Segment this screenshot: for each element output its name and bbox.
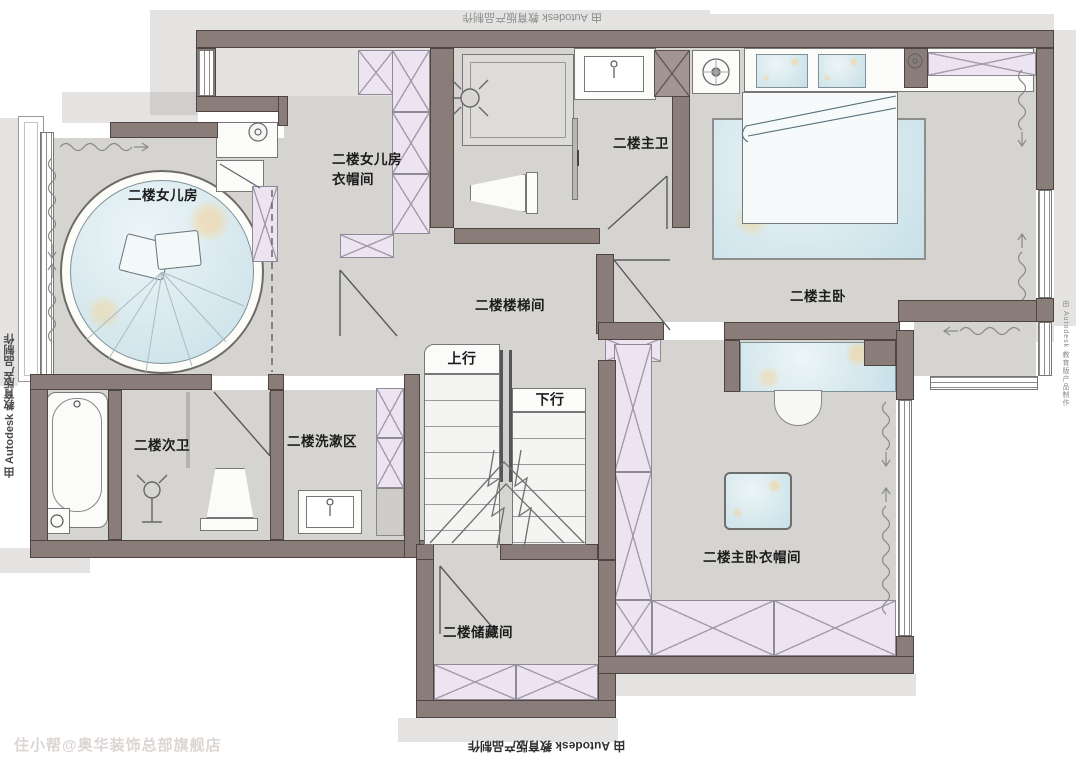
curtain-symbol <box>944 327 1020 335</box>
curtain-symbol <box>882 402 890 466</box>
stair-break-bolt <box>515 450 531 548</box>
watermark-autodesk-right: 由 Autodesk 教育版产品制作 <box>1060 300 1070 480</box>
room-label-storage: 二楼储藏间 <box>443 623 513 643</box>
door-swing <box>340 270 397 336</box>
room-label-second-bath: 二楼次卫 <box>134 436 190 456</box>
curtain-symbol <box>1018 70 1026 146</box>
room-label-washing-area: 二楼洗漱区 <box>287 432 357 452</box>
faucet-icons <box>51 61 617 527</box>
curtain-symbol <box>882 488 890 614</box>
curtain-symbols <box>48 70 1026 614</box>
door-swing <box>608 176 667 229</box>
door-swing <box>214 392 270 456</box>
curtain-symbol <box>48 158 56 258</box>
watermark-autodesk-left: 由 Autodesk 教育版产品制作 <box>2 278 18 478</box>
room-label-daughter: 二楼女儿房 <box>128 186 198 206</box>
bed-fold-lines <box>742 96 896 142</box>
curtain-symbol <box>48 264 56 342</box>
shower-fixture-icon <box>137 475 167 522</box>
room-label-daughter-closet: 二楼女儿房 衣帽间 <box>332 150 402 191</box>
desk-stool-icon <box>220 123 267 188</box>
stair-label-down: 下行 <box>536 390 565 411</box>
corner-fixture-icon <box>908 54 922 68</box>
watermark-autodesk-bottom: 由 Autodesk 教育版产品制作 <box>468 738 625 755</box>
symbol-overlay <box>0 0 1080 764</box>
door-swing <box>614 260 670 330</box>
room-label-stairwell: 二楼楼梯间 <box>475 296 545 316</box>
curtain-symbol <box>60 143 148 151</box>
curtain-symbol <box>1018 234 1026 300</box>
room-label-master-closet: 二楼主卧衣帽间 <box>703 548 801 568</box>
shower-head-icon <box>452 80 488 116</box>
stair-label-up: 上行 <box>448 349 477 370</box>
room-label-master-bath: 二楼主卫 <box>613 134 669 154</box>
room-label-master-bedroom: 二楼主卧 <box>790 287 846 307</box>
watermark-shop: 住小帮@奥华装饰总部旗舰店 <box>14 734 222 755</box>
stair-break-marks <box>430 450 584 548</box>
stair-chevron <box>430 462 584 543</box>
washer-drum-icon <box>702 58 730 86</box>
floor-plan-canvas: 二楼女儿房 二楼女儿房 衣帽间 二楼主卫 二楼主卧 二楼楼梯间 二楼次卫 二楼洗… <box>0 0 1080 764</box>
watermark-autodesk-top: 由 Autodesk 教育版产品制作 <box>462 10 602 26</box>
door-swings <box>214 176 670 634</box>
stair-chevron <box>452 484 564 543</box>
round-bed-folds <box>86 272 244 372</box>
